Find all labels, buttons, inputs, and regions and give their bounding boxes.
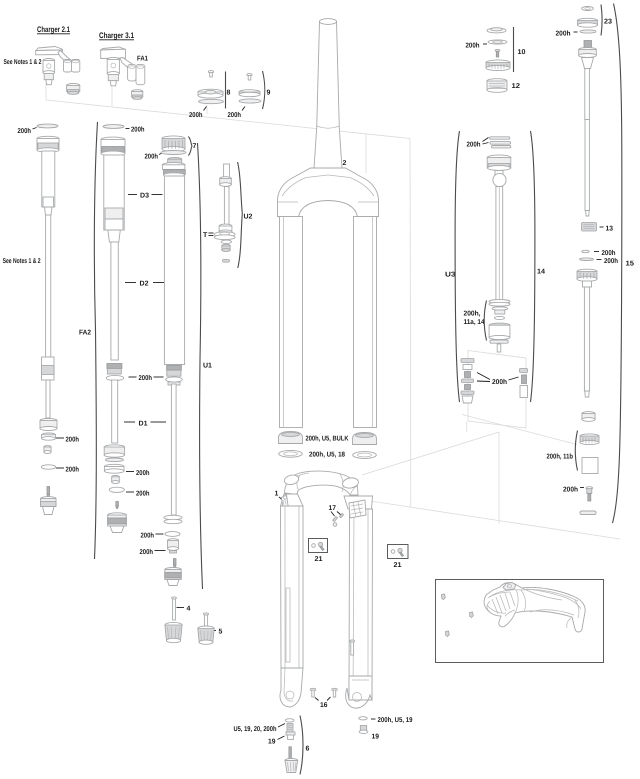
svg-text:6: 6 xyxy=(306,746,310,753)
svg-text:200h: 200h xyxy=(556,30,571,38)
svg-text:17: 17 xyxy=(329,505,337,512)
svg-text:8: 8 xyxy=(227,90,231,97)
svg-text:200h: 200h xyxy=(140,548,154,556)
svg-text:200h: 200h xyxy=(145,153,159,161)
svg-text:10: 10 xyxy=(518,49,526,56)
svg-text:200h: 200h xyxy=(18,127,32,135)
svg-text:14: 14 xyxy=(537,269,545,276)
svg-text:D2: D2 xyxy=(140,281,149,288)
svg-text:200h, U5, 18: 200h, U5, 18 xyxy=(309,451,345,459)
svg-text:200h: 200h xyxy=(139,374,153,382)
svg-text:12: 12 xyxy=(512,83,521,90)
svg-text:200h: 200h xyxy=(66,436,80,444)
svg-text:D3: D3 xyxy=(140,193,149,200)
svg-text:200h: 200h xyxy=(563,486,578,494)
svg-text:4: 4 xyxy=(187,606,191,613)
svg-text:200h: 200h xyxy=(66,466,80,474)
svg-text:T: T xyxy=(203,232,208,239)
svg-text:200h,: 200h, xyxy=(464,310,481,318)
svg-text:200h, U5, BULK: 200h, U5, BULK xyxy=(306,435,349,443)
svg-text:13: 13 xyxy=(606,226,614,233)
svg-text:7: 7 xyxy=(193,143,197,150)
svg-text:2: 2 xyxy=(343,160,347,167)
svg-text:200h: 200h xyxy=(602,249,616,257)
svg-text:200h: 200h xyxy=(136,469,150,477)
svg-text:200h: 200h xyxy=(604,257,618,265)
svg-text:See Notes 1 & 2: See Notes 1 & 2 xyxy=(3,258,41,265)
svg-text:200h: 200h xyxy=(141,532,155,540)
svg-text:15: 15 xyxy=(626,261,635,268)
svg-text:D1: D1 xyxy=(139,421,148,428)
svg-text:Charger 2.1: Charger 2.1 xyxy=(37,25,70,34)
svg-text:See Notes 1 & 2: See Notes 1 & 2 xyxy=(4,59,42,66)
svg-text:16: 16 xyxy=(320,702,328,709)
svg-text:9: 9 xyxy=(267,90,271,97)
svg-text:21: 21 xyxy=(315,556,323,563)
svg-text:19: 19 xyxy=(268,739,276,746)
svg-text:5: 5 xyxy=(219,629,223,636)
svg-text:23: 23 xyxy=(604,19,612,26)
svg-text:200h, U5, 19: 200h, U5, 19 xyxy=(378,716,413,724)
svg-text:U3: U3 xyxy=(445,272,456,279)
svg-text:Charger 3.1: Charger 3.1 xyxy=(99,31,134,40)
svg-text:1: 1 xyxy=(275,491,279,498)
svg-text:U2: U2 xyxy=(244,214,253,221)
svg-text:FA1: FA1 xyxy=(137,56,148,63)
svg-text:200h: 200h xyxy=(467,141,481,149)
svg-text:21: 21 xyxy=(394,562,402,569)
svg-text:FA2: FA2 xyxy=(79,330,91,337)
svg-text:200h: 200h xyxy=(466,42,480,50)
svg-text:U1: U1 xyxy=(203,363,212,370)
svg-text:200h: 200h xyxy=(131,126,145,134)
svg-text:19: 19 xyxy=(372,734,380,741)
svg-text:200h: 200h xyxy=(492,378,507,386)
svg-text:200h: 200h xyxy=(228,111,242,119)
svg-text:200h: 200h xyxy=(136,490,150,498)
svg-text:200h: 200h xyxy=(189,111,203,119)
svg-text:11a, 14: 11a, 14 xyxy=(464,319,485,326)
svg-text:200h, 11b: 200h, 11b xyxy=(547,453,574,461)
svg-text:U5, 19, 20, 200h: U5, 19, 20, 200h xyxy=(234,725,277,733)
